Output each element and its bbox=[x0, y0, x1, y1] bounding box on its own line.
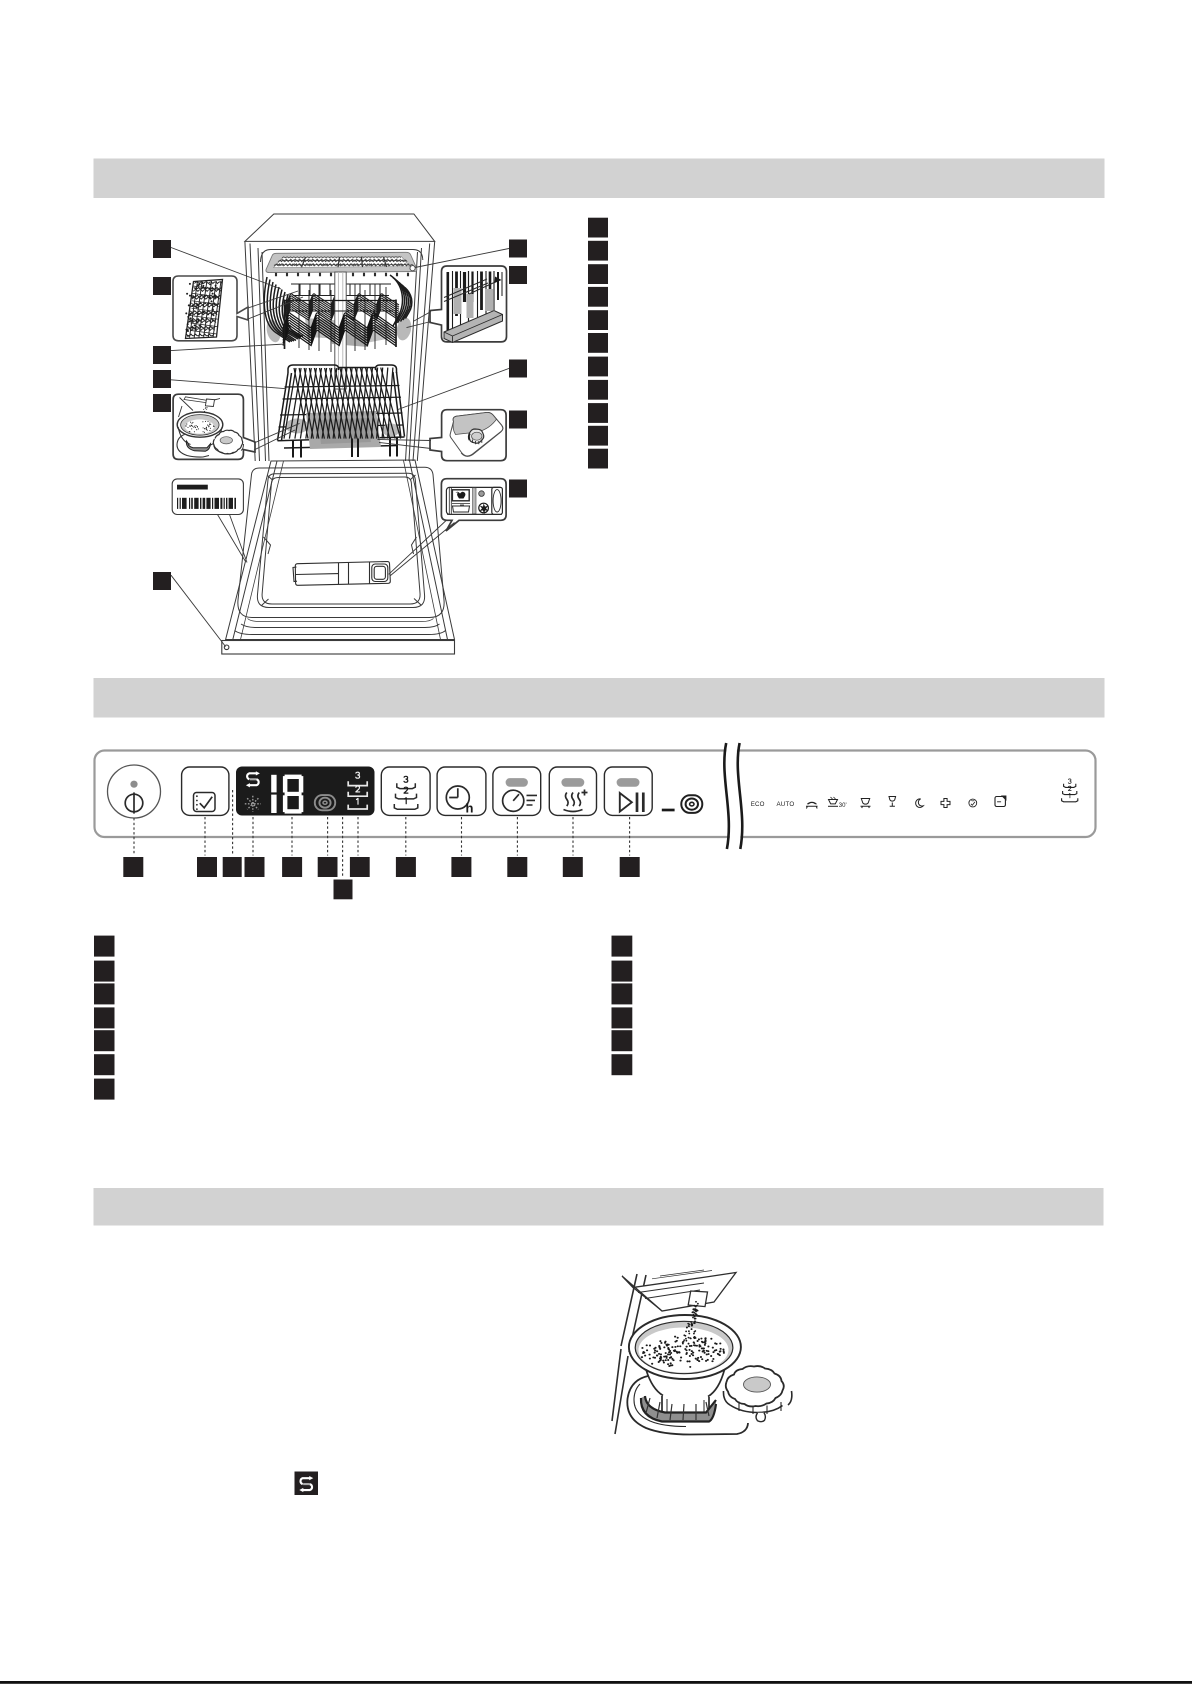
svg-text:h: h bbox=[466, 801, 474, 816]
svg-text:AUTO: AUTO bbox=[776, 801, 794, 808]
svg-text:ECO: ECO bbox=[751, 801, 765, 808]
svg-text:30': 30' bbox=[839, 803, 847, 809]
